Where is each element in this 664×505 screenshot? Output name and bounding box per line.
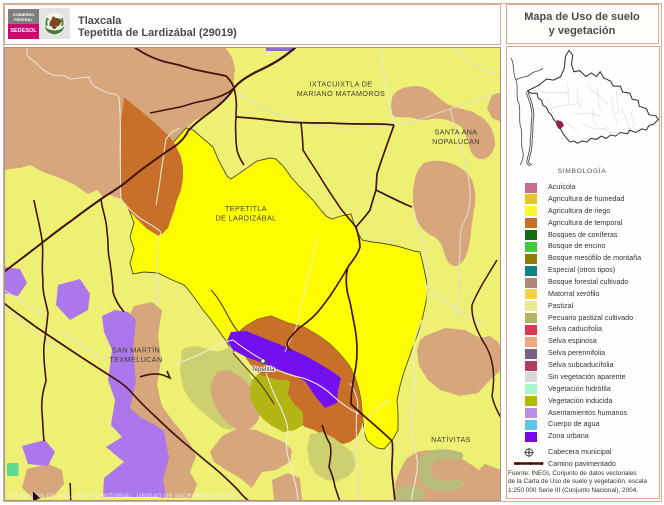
svg-text:Tepetitla: Tepetitla [251,366,275,373]
svg-text:SANTA ANA: SANTA ANA [434,128,477,137]
svg-text:NOPALUCAN: NOPALUCAN [432,137,480,146]
svg-text:MARIANO MATAMOROS: MARIANO MATAMOROS [297,89,385,98]
svg-text:NATÍVITAS: NATÍVITAS [431,435,471,444]
svg-text:DIRECCIÓN DE ANÁLISIS TERRITOR: DIRECCIÓN DE ANÁLISIS TERRITORIAL, UNIDA… [8,493,236,500]
svg-text:IXTACUIXTLA DE: IXTACUIXTLA DE [310,80,373,89]
svg-text:SAN MARTÍN: SAN MARTÍN [112,346,160,355]
svg-text:TEXMELUCAN: TEXMELUCAN [109,355,162,364]
svg-text:DE LARDIZÁBAL: DE LARDIZÁBAL [215,214,276,223]
svg-text:TEPETITLA: TEPETITLA [225,204,267,213]
